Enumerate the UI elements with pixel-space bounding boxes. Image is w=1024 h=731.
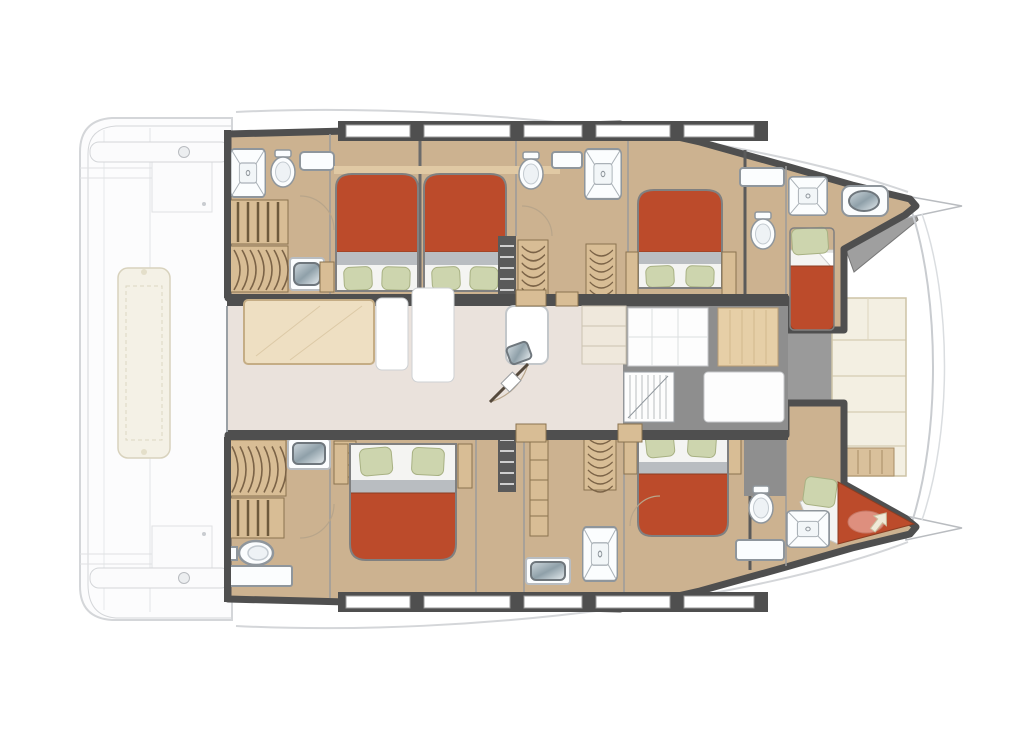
bow-sink bbox=[842, 186, 888, 216]
galley-island bbox=[506, 306, 548, 365]
shower-stall bbox=[231, 149, 266, 197]
salon-entry-stairs bbox=[498, 432, 516, 492]
wardrobe bbox=[584, 432, 616, 492]
vanity-sink bbox=[526, 558, 570, 584]
shelf-column bbox=[530, 440, 548, 536]
shower-stall bbox=[585, 149, 621, 199]
cockpit-seat bbox=[704, 372, 784, 422]
wall-cabinet bbox=[516, 290, 546, 306]
pillow bbox=[802, 476, 838, 508]
nightstand bbox=[458, 444, 472, 488]
wall-cabinet bbox=[516, 424, 546, 442]
dining-table bbox=[244, 300, 374, 364]
wardrobe bbox=[226, 440, 286, 496]
salon-wall bbox=[227, 430, 788, 440]
vanity-counter bbox=[228, 566, 292, 586]
galley-counter bbox=[582, 306, 626, 364]
sink bbox=[300, 152, 334, 170]
wardrobe bbox=[228, 246, 288, 292]
trampoline-edge bbox=[912, 212, 933, 522]
sink-counter bbox=[736, 540, 784, 560]
vanity-sink bbox=[290, 258, 324, 290]
cleat bbox=[179, 147, 190, 158]
shower-stall bbox=[787, 511, 829, 547]
shower-stall bbox=[583, 527, 618, 581]
cleat bbox=[179, 573, 190, 584]
single-bed bbox=[790, 227, 834, 330]
sink-counter bbox=[740, 168, 784, 186]
hull-windows bbox=[338, 592, 768, 612]
aft-deck bbox=[80, 118, 232, 620]
double-bed bbox=[350, 444, 456, 560]
hull-staircase bbox=[228, 498, 284, 538]
wall-cabinet bbox=[556, 292, 578, 306]
double-bed bbox=[638, 430, 728, 536]
cockpit-bench-cushion bbox=[118, 268, 170, 458]
toilet bbox=[749, 486, 773, 523]
nightstand bbox=[334, 444, 348, 484]
double-bed bbox=[638, 190, 722, 288]
toilet bbox=[519, 152, 543, 189]
double-bed bbox=[424, 174, 506, 291]
companionway-slats bbox=[624, 372, 674, 422]
wall-cabinet bbox=[618, 424, 642, 442]
nightstand bbox=[626, 252, 638, 298]
toilet bbox=[271, 150, 295, 187]
double-bed bbox=[336, 174, 418, 291]
shower-stall bbox=[789, 177, 827, 215]
aft-crossbar bbox=[90, 568, 230, 588]
nightstand bbox=[320, 262, 334, 292]
vanity-sink bbox=[288, 439, 330, 469]
salon-bench bbox=[412, 288, 454, 382]
floorplan-svg bbox=[0, 0, 1024, 731]
hull-staircase bbox=[228, 200, 288, 244]
galley-cabinet bbox=[628, 308, 708, 366]
salon-entry-stairs bbox=[498, 236, 516, 300]
aft-crossbar bbox=[90, 142, 230, 162]
nightstand bbox=[722, 252, 736, 298]
sink bbox=[552, 152, 582, 168]
yacht-floorplan bbox=[0, 0, 1024, 731]
cockpit-table bbox=[718, 308, 778, 366]
salon-bench bbox=[376, 298, 408, 370]
toilet bbox=[751, 212, 775, 249]
hull-windows bbox=[338, 121, 768, 141]
